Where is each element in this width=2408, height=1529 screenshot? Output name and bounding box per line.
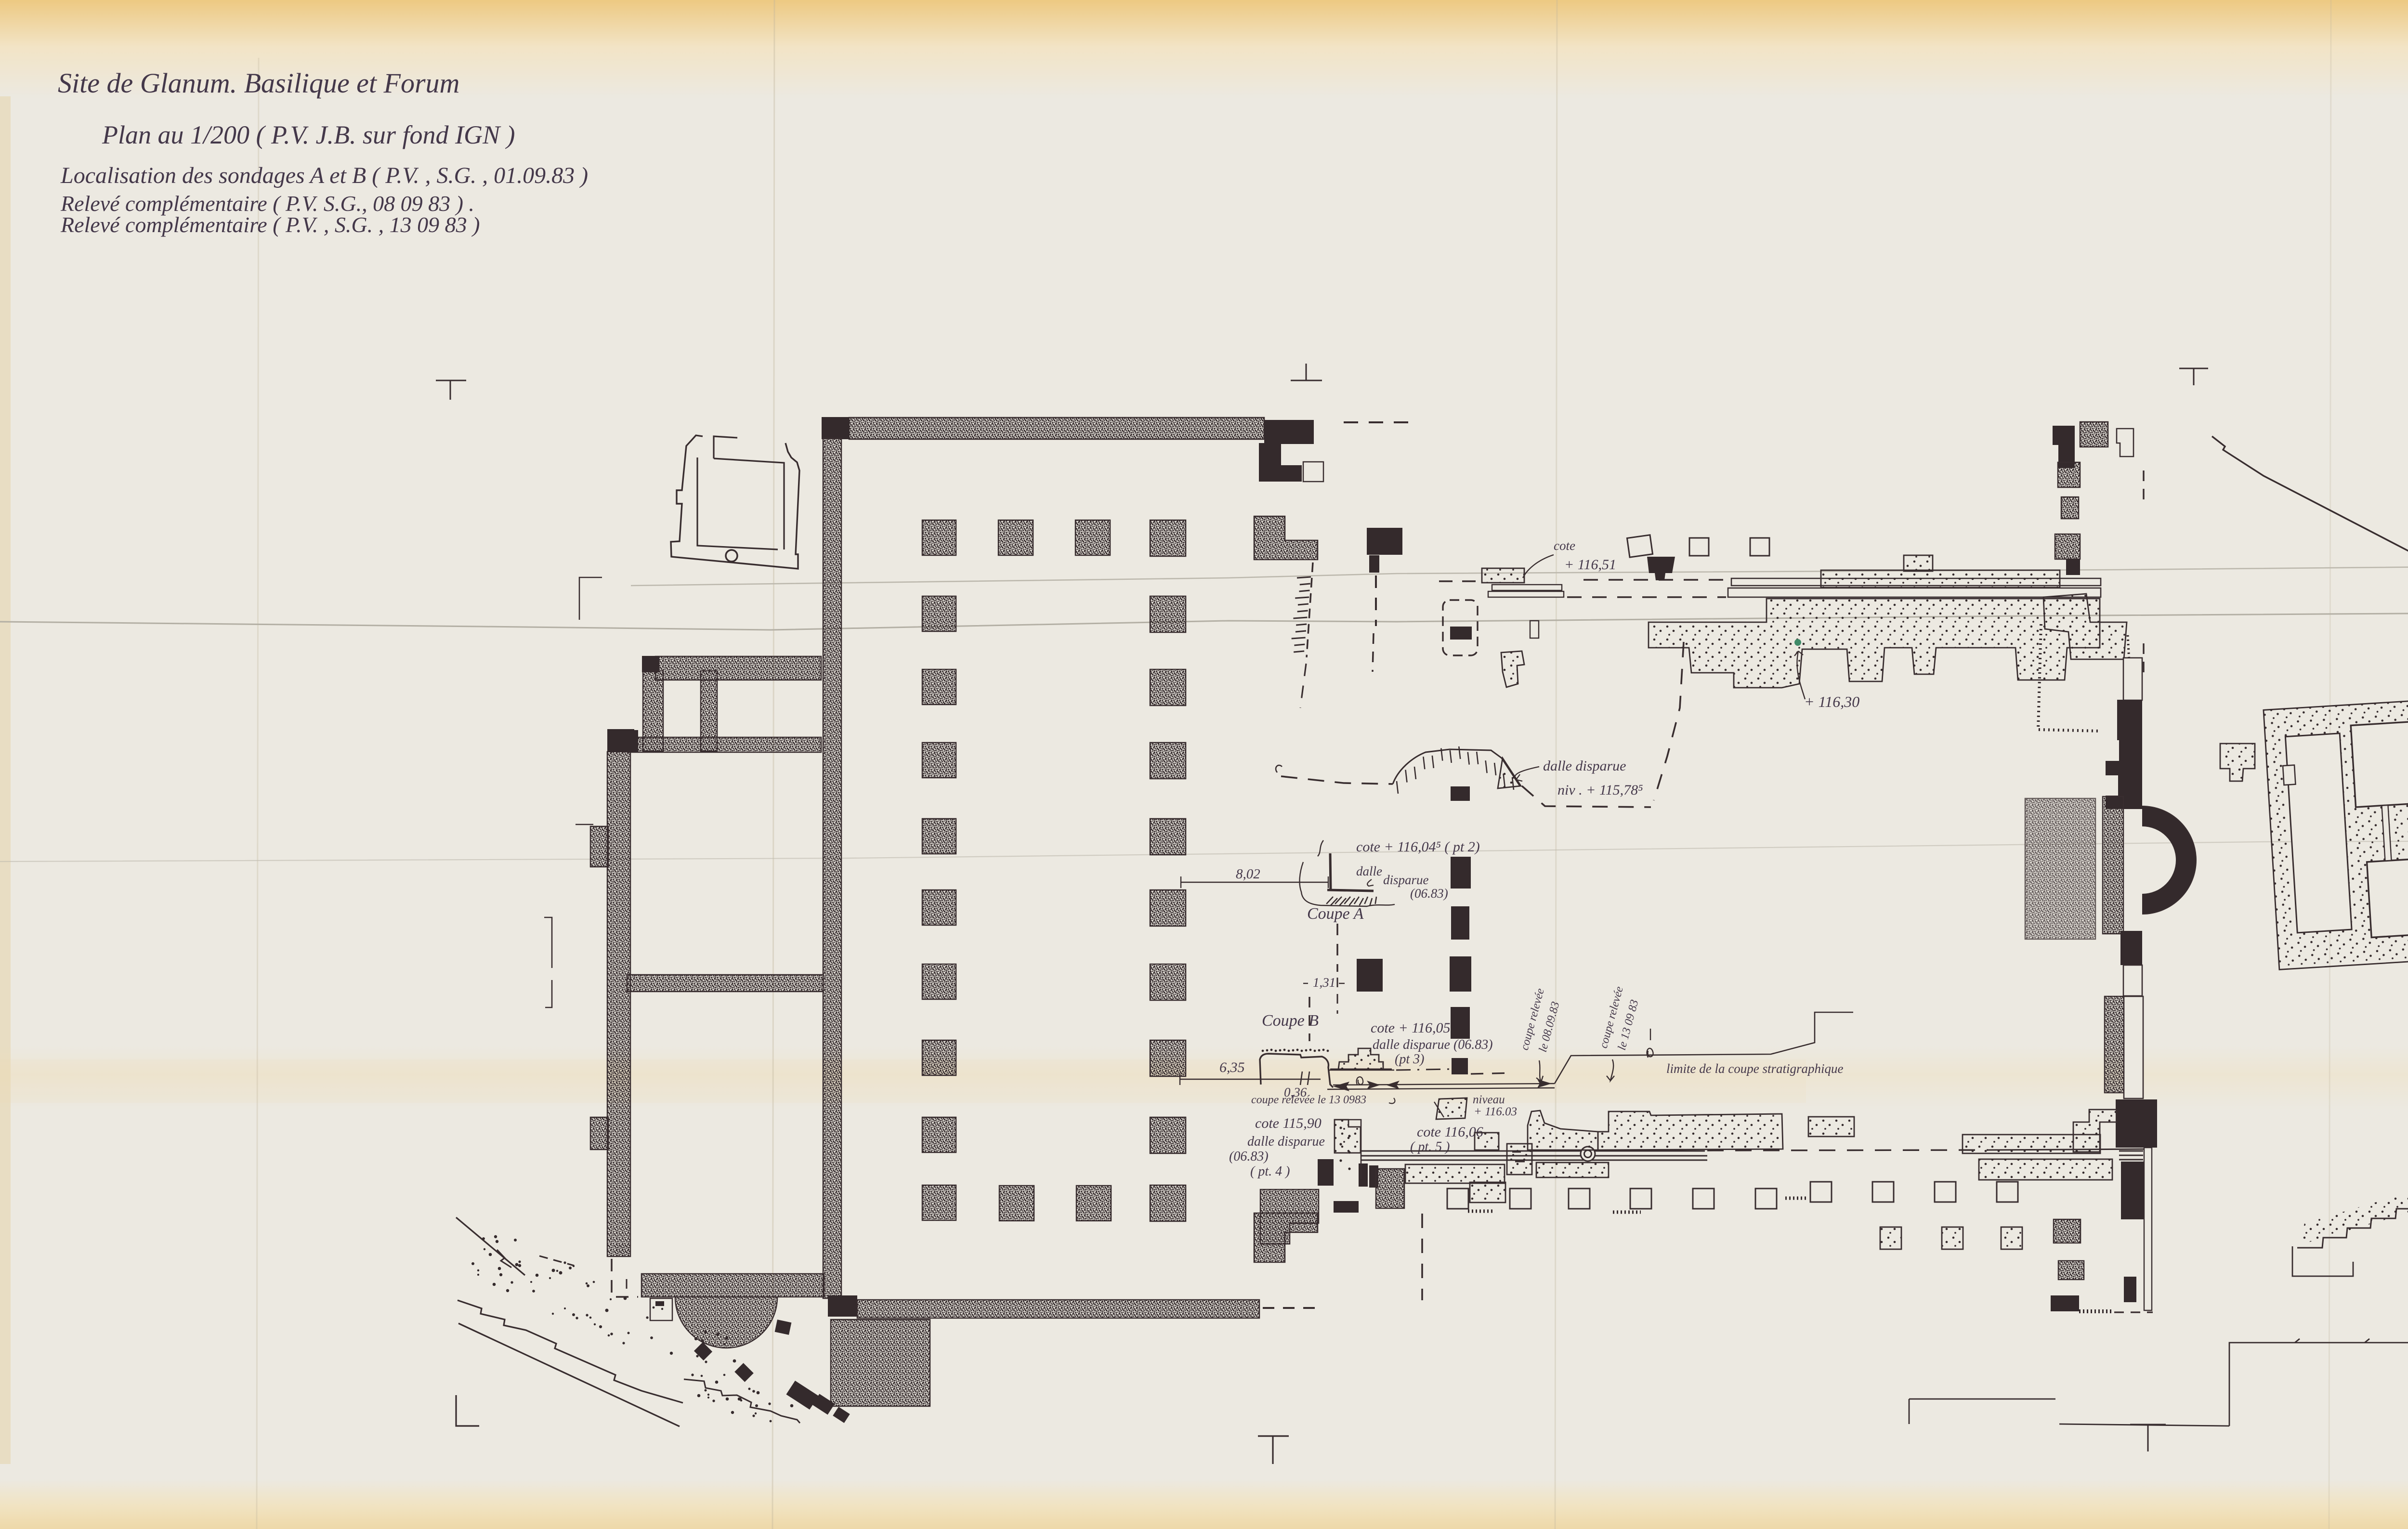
svg-text:Relevé complémentaire ( P.V.: Relevé complémentaire ( P.V. , S.G. , 13… bbox=[60, 212, 480, 237]
svg-text:cote + 116,04⁵ ( pt 2): cote + 116,04⁵ ( pt 2) bbox=[1356, 839, 1480, 855]
svg-text:1,31: 1,31 bbox=[1313, 975, 1335, 990]
svg-text:+ 116,51: + 116,51 bbox=[1564, 557, 1616, 573]
svg-text:(pt 3): (pt 3) bbox=[1395, 1052, 1424, 1067]
svg-text:Coupe A: Coupe A bbox=[1307, 905, 1364, 923]
svg-text:cote: cote bbox=[1554, 538, 1575, 553]
svg-text:coupe relevée le 13 0983: coupe relevée le 13 0983 bbox=[1251, 1094, 1366, 1106]
svg-text:dalle disparue: dalle disparue bbox=[1247, 1134, 1325, 1149]
svg-text:6,35: 6,35 bbox=[1219, 1059, 1245, 1075]
svg-text:niveau: niveau bbox=[1473, 1093, 1505, 1106]
svg-text:cote 116,06: cote 116,06 bbox=[1417, 1124, 1483, 1140]
svg-text:Site de Glanum. Basilique e: Site de Glanum. Basilique et Forum bbox=[58, 67, 459, 99]
svg-text:cote + 116,05: cote + 116,05 bbox=[1371, 1020, 1450, 1036]
svg-text:+ 116,30: + 116,30 bbox=[1804, 693, 1859, 710]
svg-text:8,02: 8,02 bbox=[1236, 866, 1260, 882]
svg-text:niv . + 115,78⁵: niv . + 115,78⁵ bbox=[1557, 782, 1643, 798]
svg-text:Localisation des sondages A: Localisation des sondages A et B ( P.V. … bbox=[60, 163, 588, 188]
svg-text:(06.83): (06.83) bbox=[1229, 1149, 1269, 1164]
svg-text:(06.83): (06.83) bbox=[1410, 886, 1448, 901]
svg-text:dalle disparue: dalle disparue bbox=[1543, 758, 1626, 774]
svg-text:limite de la coupe str: limite de la coupe stratigraphique bbox=[1666, 1061, 1843, 1076]
svg-text:Plan au 1/200 ( P.V. J.B.: Plan au 1/200 ( P.V. J.B. sur fond IGN ) bbox=[102, 120, 515, 149]
svg-text:cote 115,90: cote 115,90 bbox=[1255, 1115, 1322, 1131]
svg-text:( pt. 5 ): ( pt. 5 ) bbox=[1410, 1139, 1450, 1154]
svg-text:dalle: dalle bbox=[1356, 864, 1382, 878]
svg-text:( pt. 4 ): ( pt. 4 ) bbox=[1250, 1164, 1290, 1179]
svg-text:disparue: disparue bbox=[1383, 873, 1429, 887]
svg-text:dalle disparue (06.83): dalle disparue (06.83) bbox=[1373, 1037, 1493, 1052]
svg-text:+ 116.03: + 116.03 bbox=[1474, 1105, 1517, 1118]
